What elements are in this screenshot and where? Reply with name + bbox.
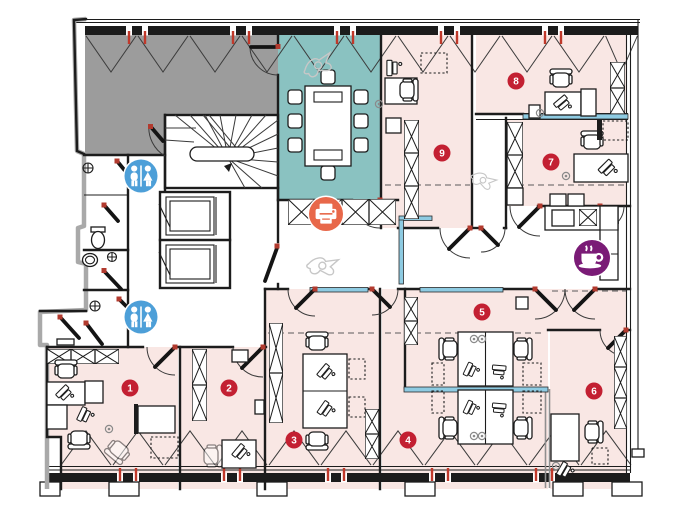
room-badge-4: 4	[400, 432, 417, 449]
svg-text:1: 1	[127, 384, 133, 395]
svg-text:2: 2	[226, 384, 232, 395]
sink	[579, 209, 597, 226]
svg-text:8: 8	[513, 77, 519, 88]
room-badge-3: 3	[286, 432, 303, 449]
room-badge-5: 5	[474, 304, 491, 321]
restroom-icon-lower	[123, 299, 159, 335]
svg-text:5: 5	[479, 308, 485, 319]
room-badge-1: 1	[122, 380, 139, 397]
restroom-fixtures	[57, 163, 117, 345]
gray-room-zone	[85, 33, 278, 155]
staircase	[165, 115, 278, 188]
printer-icon	[308, 196, 345, 233]
floor-plan-page: 1 2 3 4 5 6 7 8 9	[0, 0, 690, 513]
elevator-bank	[159, 192, 230, 288]
svg-text:6: 6	[591, 387, 597, 398]
room-badge-7: 7	[543, 154, 560, 171]
room-badge-9: 9	[434, 145, 451, 162]
svg-text:4: 4	[405, 436, 411, 447]
floor-plan-svg: 1 2 3 4 5 6 7 8 9	[0, 0, 690, 513]
conference-table	[305, 86, 351, 166]
coffee-icon	[573, 239, 612, 278]
room-badge-6: 6	[586, 383, 603, 400]
restroom-icon-upper	[123, 158, 159, 194]
room-badge-8: 8	[508, 73, 525, 90]
room-badge-2: 2	[221, 380, 238, 397]
svg-text:3: 3	[291, 436, 297, 447]
svg-text:9: 9	[439, 149, 445, 160]
svg-text:7: 7	[548, 158, 554, 169]
